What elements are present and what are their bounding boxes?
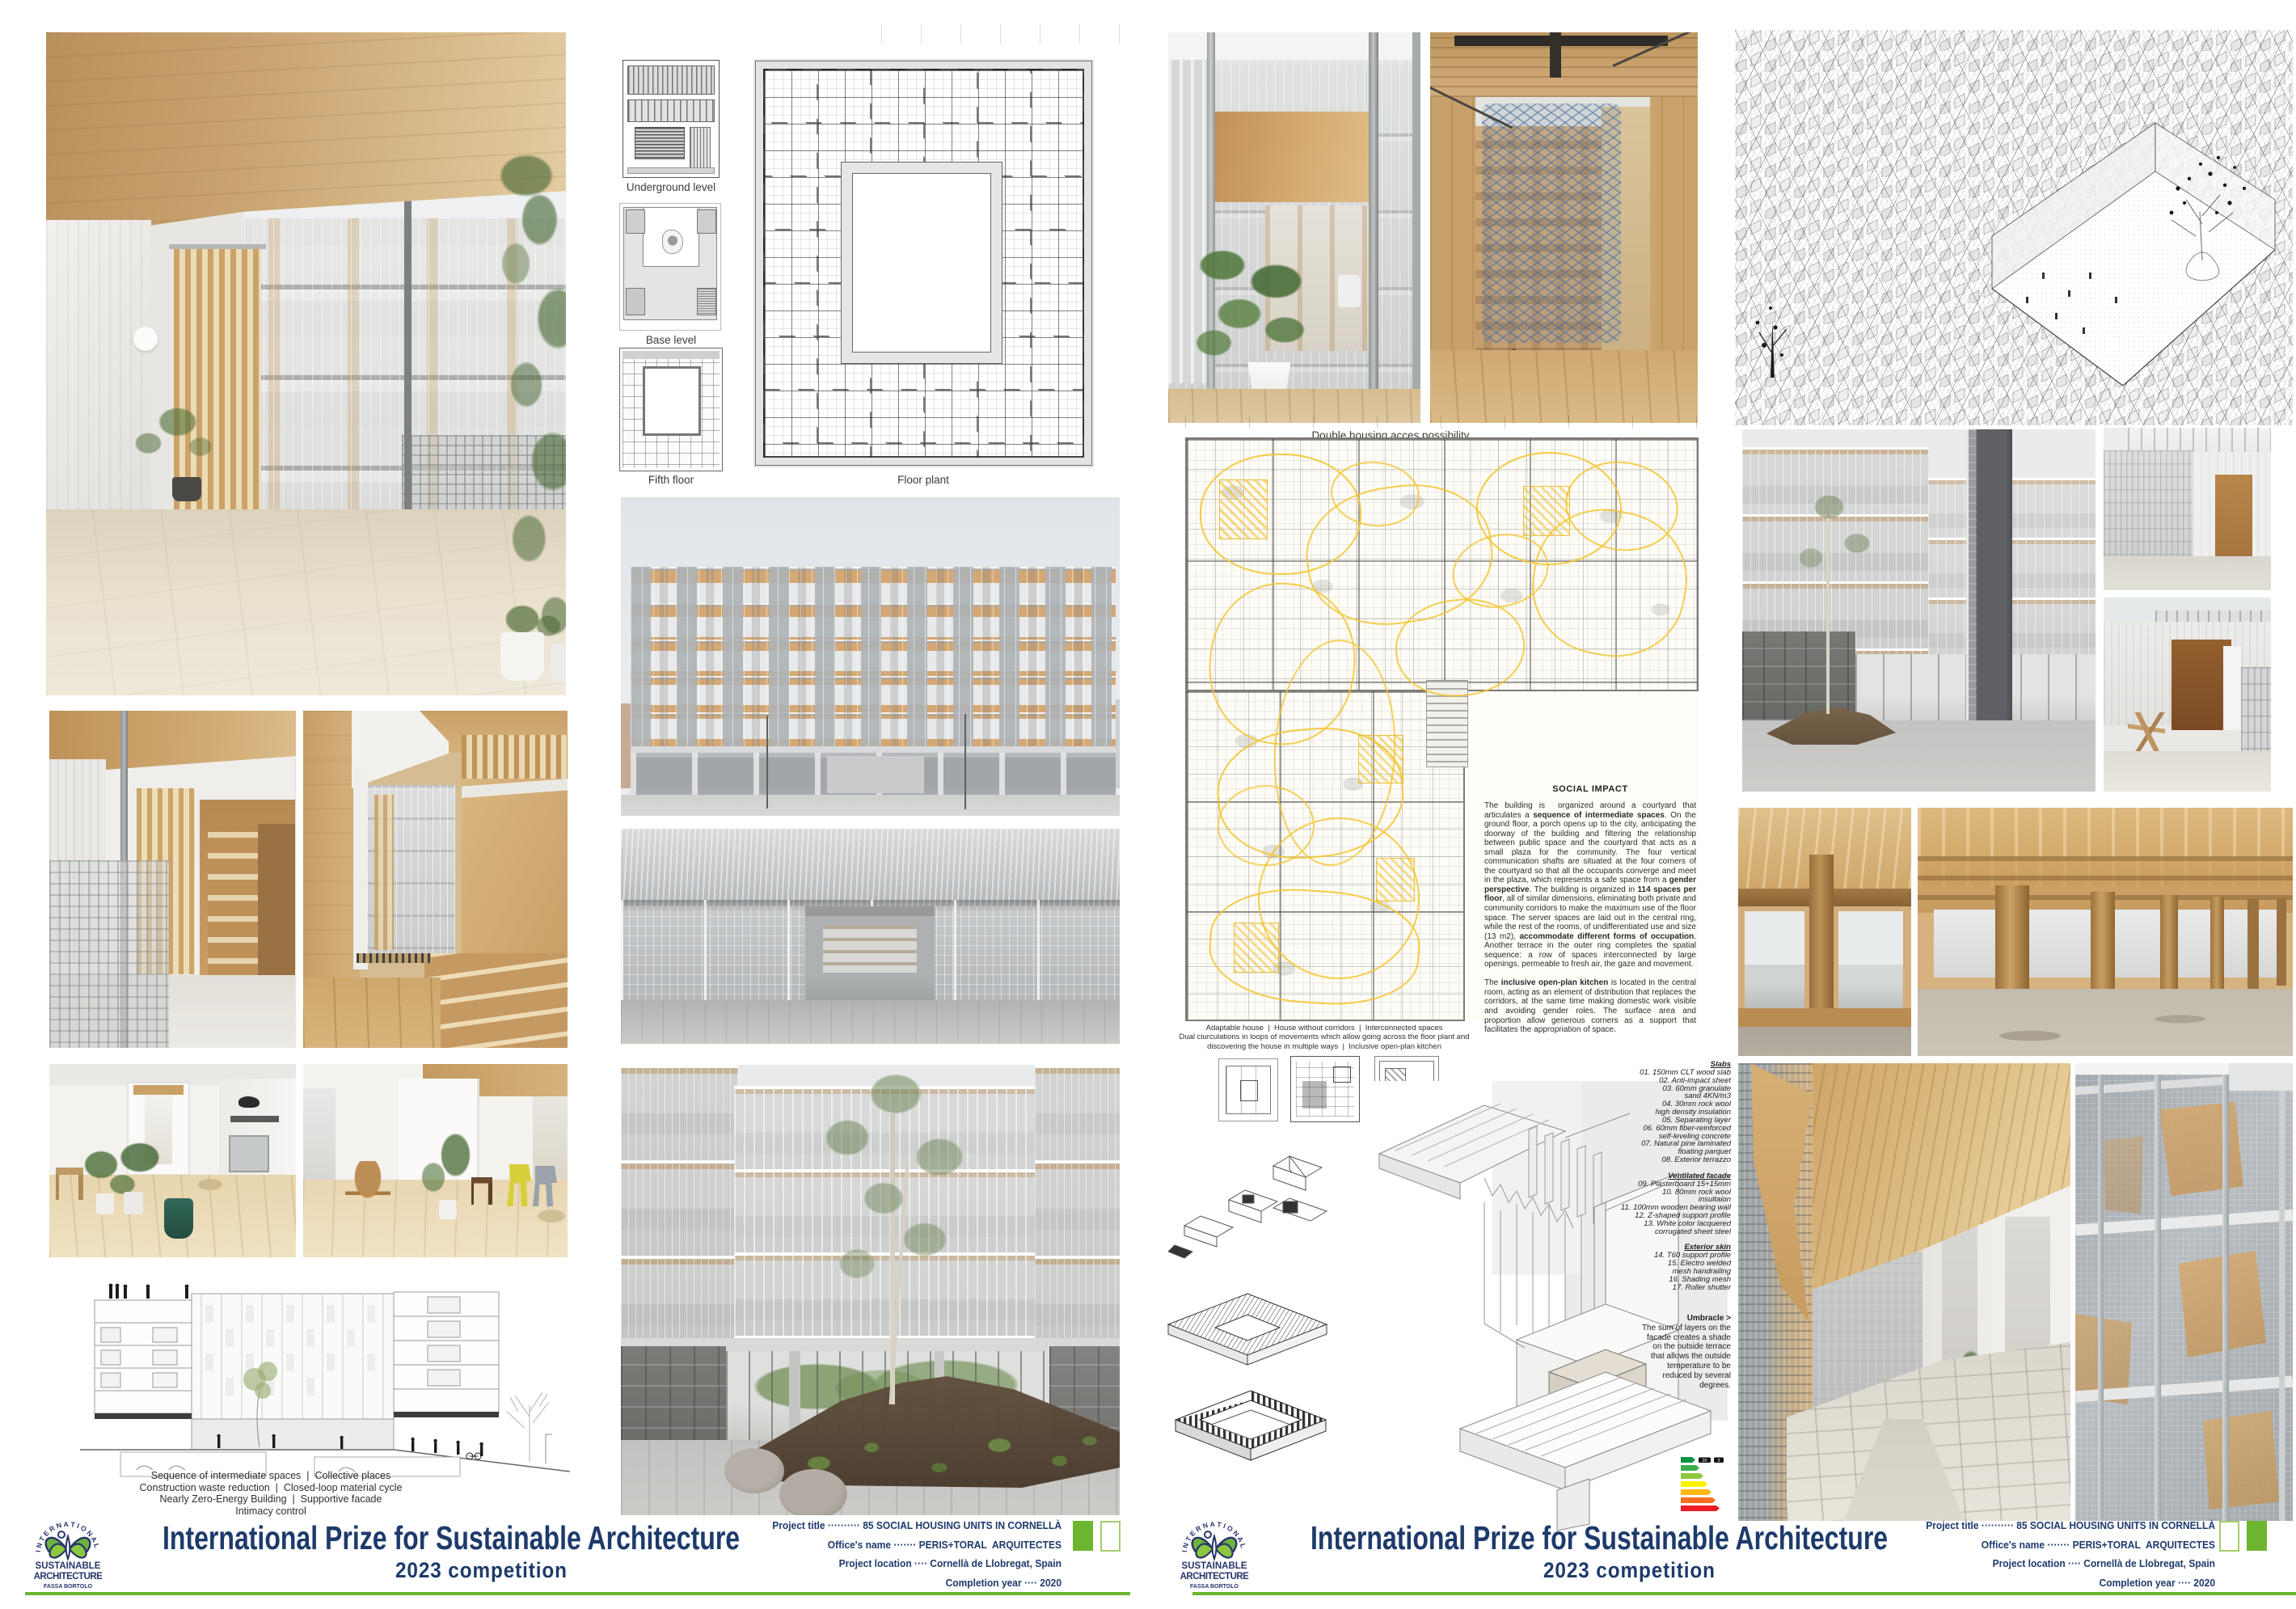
svg-text:3: 3	[1717, 1459, 1720, 1463]
svg-text:FASSA BORTOLO: FASSA BORTOLO	[1190, 1584, 1239, 1590]
svg-text:20: 20	[1702, 1459, 1707, 1463]
svg-text:SUSTAINABLE: SUSTAINABLE	[36, 1561, 101, 1571]
svg-text:ARCHITECTURE: ARCHITECTURE	[34, 1572, 103, 1582]
svg-text:ARCHITECTURE: ARCHITECTURE	[1180, 1572, 1250, 1582]
svg-text:SUSTAINABLE: SUSTAINABLE	[1182, 1561, 1247, 1571]
svg-text:FASSA BORTOLO: FASSA BORTOLO	[44, 1584, 92, 1590]
